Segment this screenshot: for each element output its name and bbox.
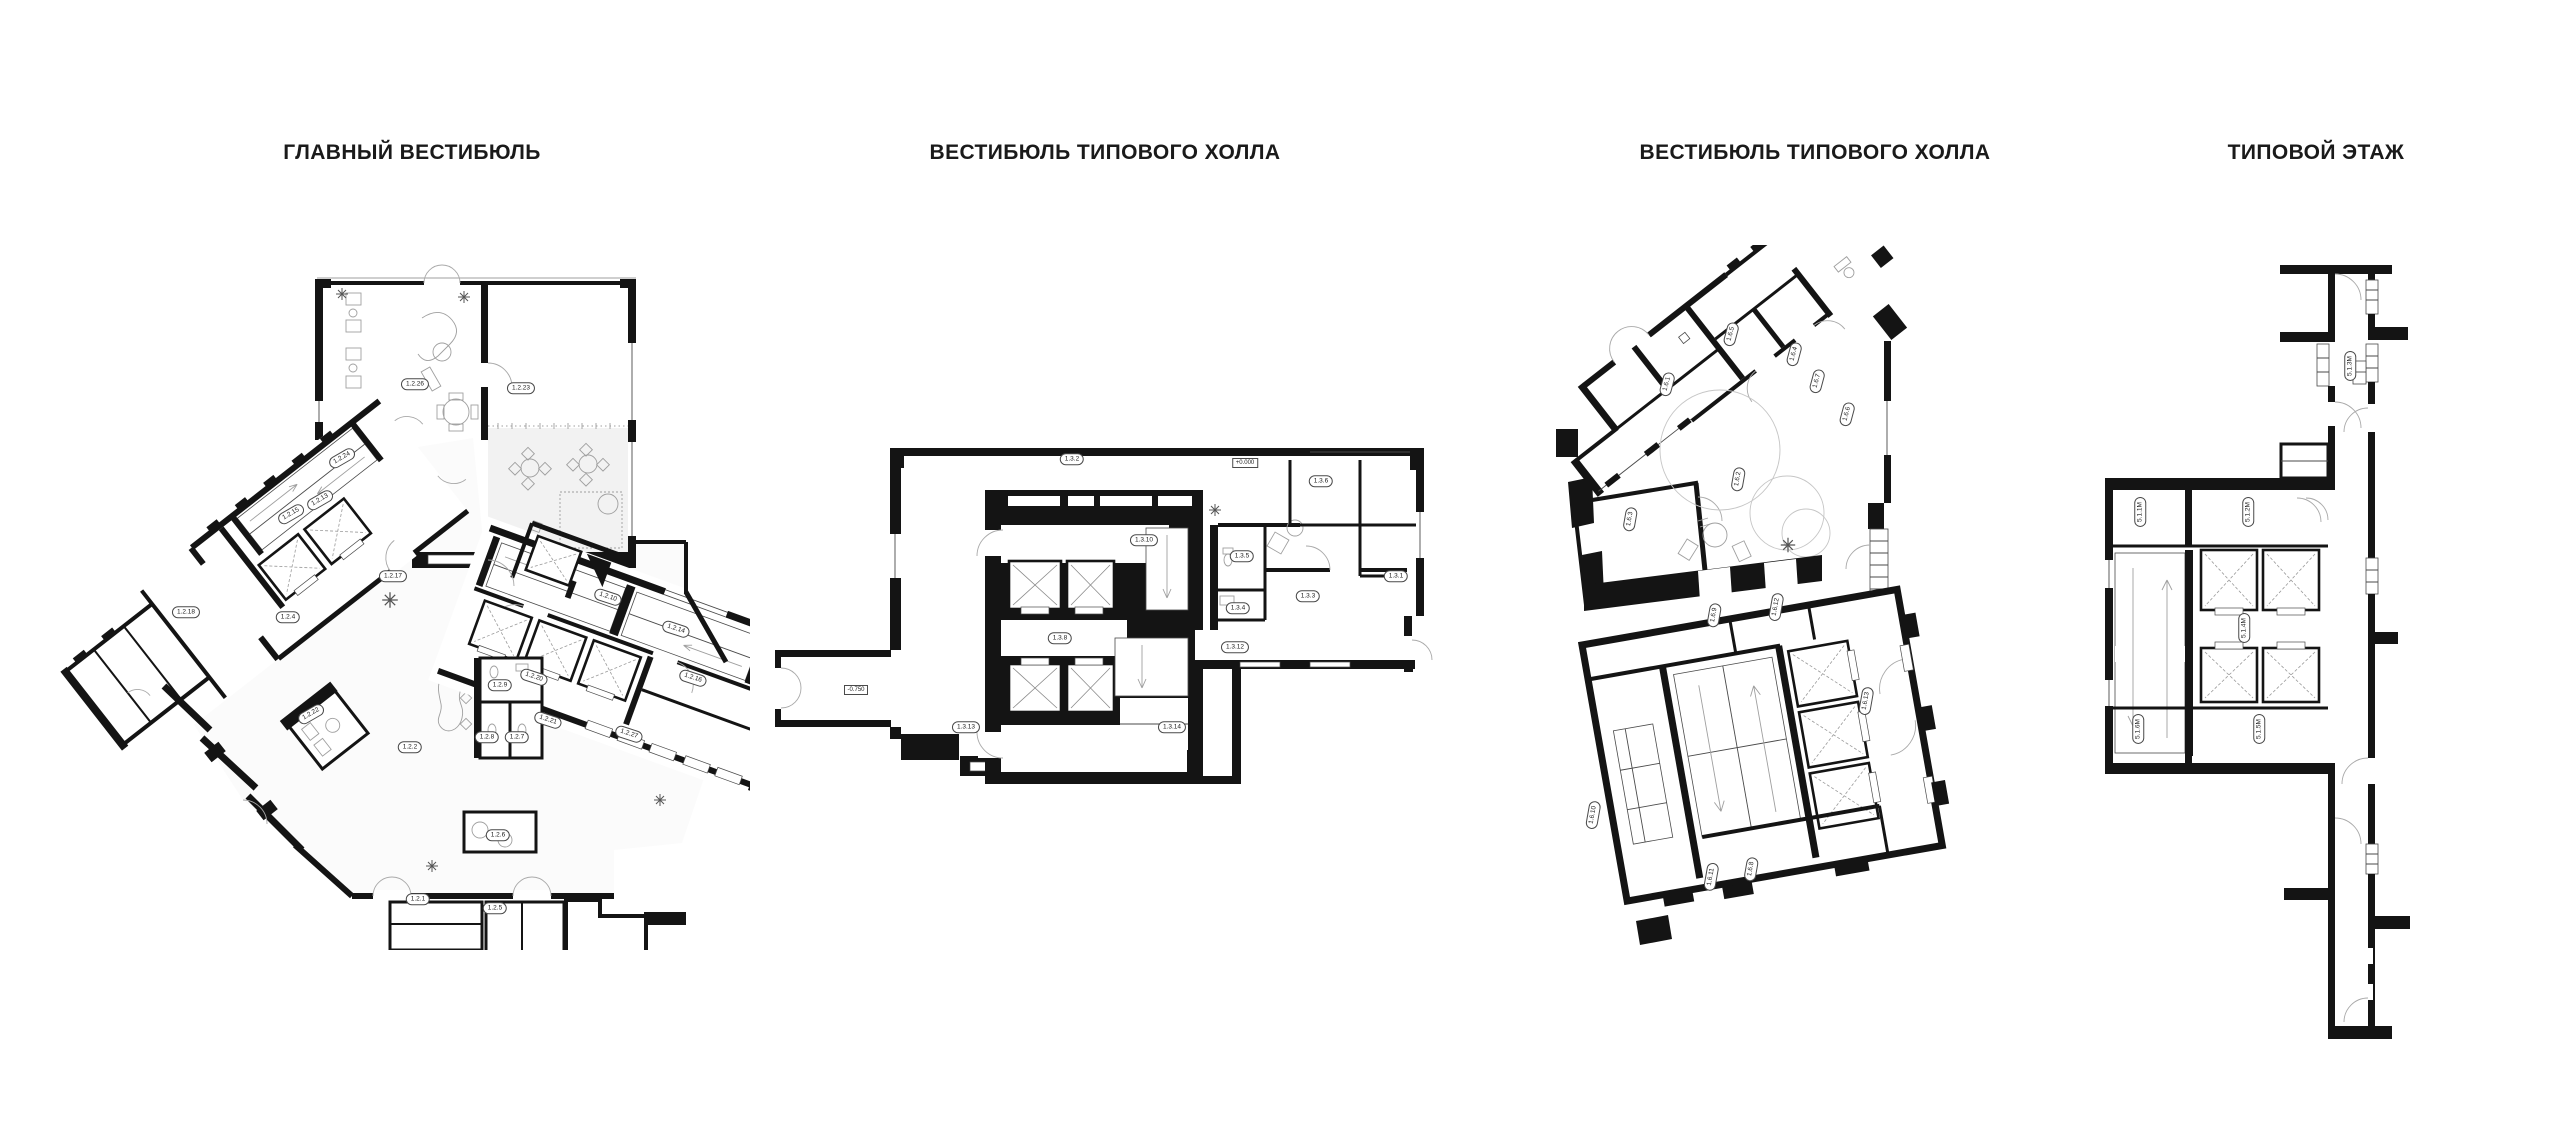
core-stair	[2115, 553, 2185, 753]
plan-title-typical-floor: ТИПОВОЙ ЭТАЖ	[2228, 141, 2405, 165]
floor-plan-hall-vestibule-b-drawing	[1550, 245, 2010, 1000]
west-corridor	[775, 650, 891, 727]
corridor-spine	[2280, 265, 2408, 478]
plan-title-hall-vestibule-a: ВЕСТИБЮЛЬ ТИПОВОГО ХОЛЛА	[930, 141, 1281, 165]
drawing-sheet: ГЛАВНЫЙ ВЕСТИБЮЛЬ ВЕСТИБЮЛЬ ТИПОВОГО ХОЛ…	[0, 0, 2560, 1137]
stair-elevator-core	[2105, 478, 2335, 774]
lower-core	[1582, 587, 1959, 916]
floor-plan-hall-vestibule-a	[770, 440, 1440, 805]
main-entrance-door	[424, 265, 460, 283]
upper-room-band	[1550, 245, 1925, 513]
floor-plan-main-vestibule-drawing	[60, 260, 750, 950]
floor-plan-typical-floor	[2085, 258, 2410, 1053]
elevator-core	[977, 490, 1207, 784]
east-corridor	[1846, 304, 1907, 627]
plan-title-hall-vestibule-b: ВЕСТИБЮЛЬ ТИПОВОГО ХОЛЛА	[1640, 141, 1991, 165]
floor-plan-main-vestibule	[60, 260, 750, 955]
core-elevators	[2201, 550, 2319, 702]
plan-title-main-vestibule: ГЛАВНЫЙ ВЕСТИБЮЛЬ	[283, 141, 540, 165]
floor-plan-hall-vestibule-a-drawing	[770, 440, 1440, 800]
floor-plan-hall-vestibule-b	[1550, 245, 2010, 1005]
floor-plan-typical-floor-drawing	[2085, 258, 2410, 1048]
east-rooms	[1187, 460, 1416, 784]
wc-cluster	[474, 658, 542, 758]
